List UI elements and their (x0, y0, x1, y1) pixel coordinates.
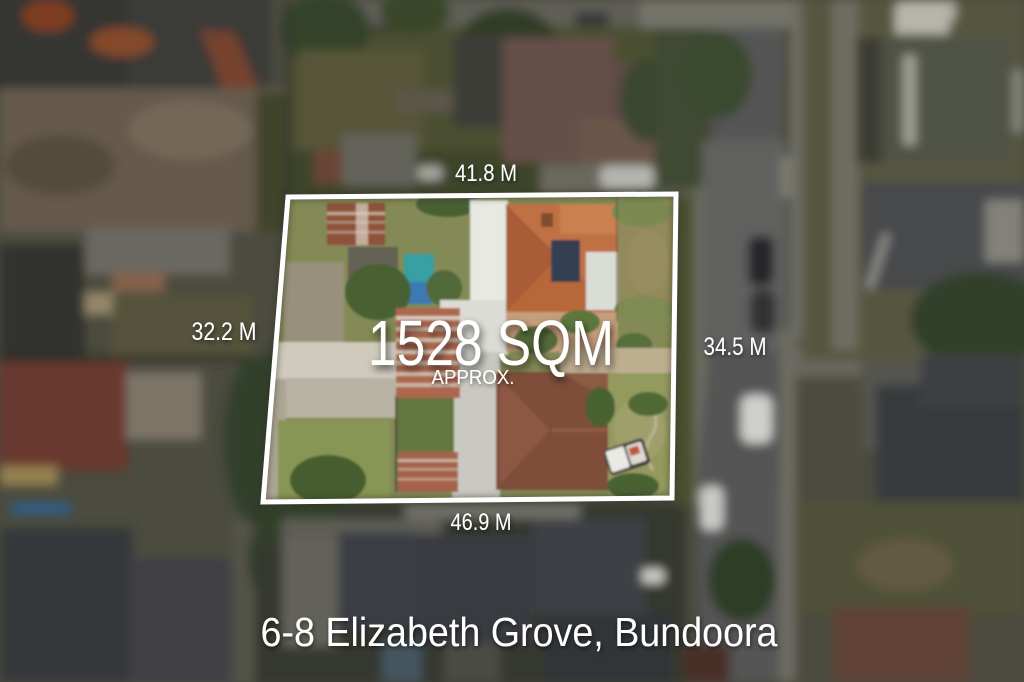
svg-text:41.8 M: 41.8 M (455, 160, 517, 187)
svg-text:6-8 Elizabeth Grove, Bundoora: 6-8 Elizabeth Grove, Bundoora (261, 609, 778, 655)
svg-text:34.5 M: 34.5 M (704, 333, 767, 361)
svg-text:46.9 M: 46.9 M (451, 509, 512, 536)
svg-text:APPROX.: APPROX. (432, 367, 515, 389)
svg-text:32.2 M: 32.2 M (192, 318, 257, 346)
